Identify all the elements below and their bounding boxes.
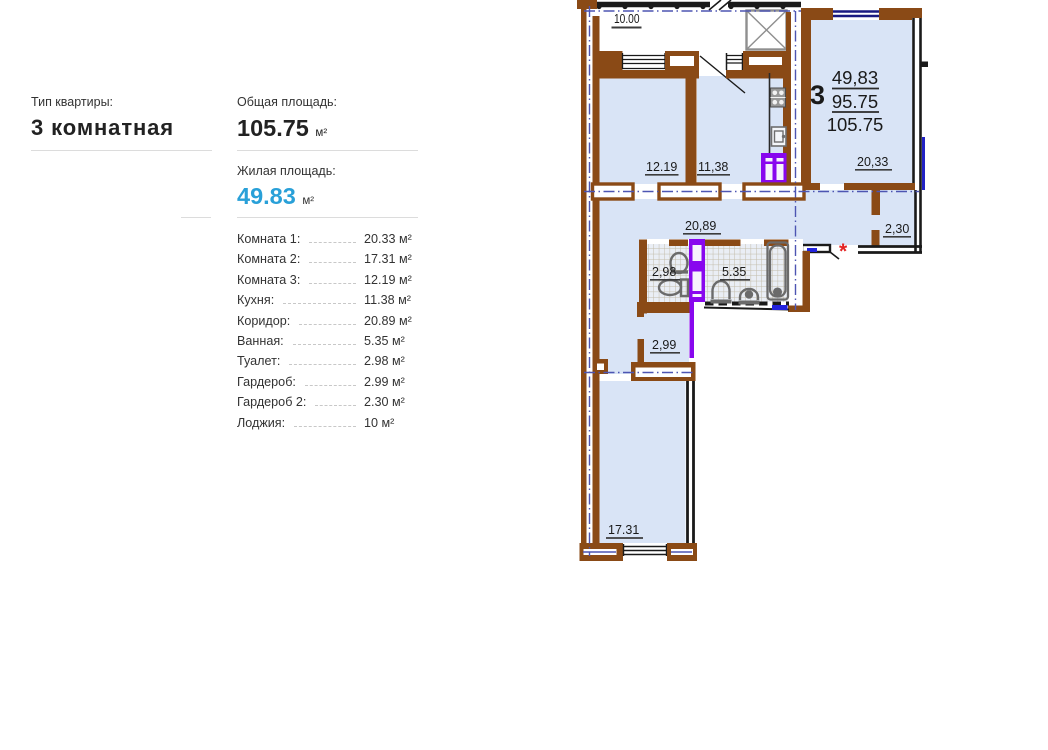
svg-text:20,33: 20,33 bbox=[857, 155, 888, 169]
svg-text:12.19: 12.19 bbox=[646, 160, 677, 174]
svg-text:2,98: 2,98 bbox=[652, 265, 676, 279]
svg-text:*: * bbox=[839, 240, 848, 263]
svg-text:5.35: 5.35 bbox=[722, 265, 746, 279]
svg-text:105.75: 105.75 bbox=[827, 114, 884, 135]
svg-text:17.31: 17.31 bbox=[608, 523, 639, 537]
svg-text:11,38: 11,38 bbox=[698, 160, 728, 174]
svg-text:49,83: 49,83 bbox=[832, 67, 878, 88]
svg-text:10.00: 10.00 bbox=[614, 12, 640, 26]
svg-text:2,30: 2,30 bbox=[885, 222, 909, 236]
svg-text:3: 3 bbox=[810, 80, 825, 110]
svg-text:20,89: 20,89 bbox=[685, 219, 716, 233]
svg-text:95.75: 95.75 bbox=[832, 91, 878, 112]
svg-text:2,99: 2,99 bbox=[652, 338, 676, 352]
